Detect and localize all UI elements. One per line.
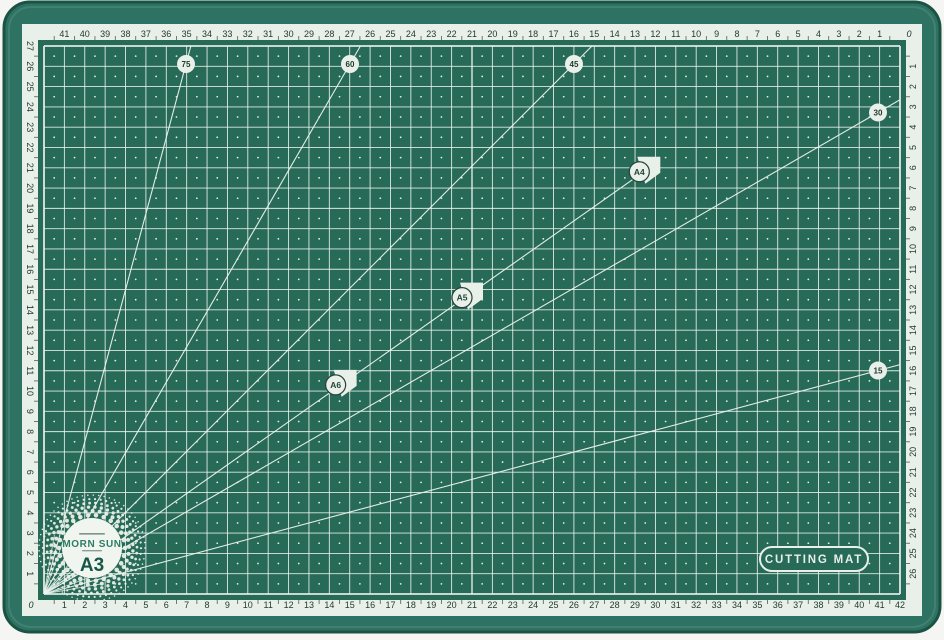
cell-dot	[542, 421, 544, 423]
cell-dot	[298, 400, 300, 402]
cell-dot	[828, 360, 830, 362]
cell-dot	[604, 76, 606, 78]
logo-halftone-dot	[62, 507, 64, 509]
cell-dot	[461, 421, 463, 423]
logo-halftone-dot	[76, 496, 78, 498]
cell-dot	[889, 502, 891, 504]
cell-dot	[441, 258, 443, 260]
ruler-number-right: 5	[908, 145, 918, 150]
cell-dot	[502, 197, 504, 199]
cell-dot	[277, 197, 279, 199]
cell-dot	[94, 76, 96, 78]
cell-dot	[114, 481, 116, 483]
logo-halftone-dot	[78, 577, 83, 582]
logo-halftone-dot	[96, 591, 99, 594]
cell-dot	[522, 583, 524, 585]
cell-dot	[216, 55, 218, 57]
cell-dot	[644, 502, 646, 504]
cell-dot	[848, 542, 850, 544]
cell-dot	[869, 542, 871, 544]
cell-dot	[563, 177, 565, 179]
cell-dot	[461, 279, 463, 281]
cell-dot	[420, 380, 422, 382]
cell-dot	[767, 339, 769, 341]
logo-halftone-dot	[49, 550, 52, 553]
logo-halftone-dot	[50, 514, 52, 516]
cell-dot	[665, 380, 667, 382]
cell-dot	[644, 481, 646, 483]
cell-dot	[787, 319, 789, 321]
logo-halftone-dot	[122, 565, 126, 569]
cell-dot	[155, 96, 157, 98]
cell-dot	[298, 563, 300, 565]
cell-dot	[644, 258, 646, 260]
logo-halftone-dot	[78, 515, 83, 520]
cell-dot	[339, 441, 341, 443]
logo-halftone-dot	[86, 578, 91, 583]
cell-dot	[379, 76, 381, 78]
angle-label-15: 15	[874, 366, 883, 375]
logo-halftone-dot	[58, 564, 62, 568]
logo-halftone-dot	[57, 546, 62, 551]
cell-dot	[665, 502, 667, 504]
cell-dot	[685, 238, 687, 240]
cell-dot	[502, 441, 504, 443]
cell-dot	[767, 55, 769, 57]
cell-dot	[665, 258, 667, 260]
logo-halftone-dot	[119, 561, 124, 566]
cell-dot	[359, 380, 361, 382]
cell-dot	[746, 421, 748, 423]
cell-dot	[746, 76, 748, 78]
logo-halftone-dot	[53, 584, 55, 586]
cell-dot	[216, 258, 218, 260]
cell-dot	[502, 157, 504, 159]
cell-dot	[828, 380, 830, 382]
cell-dot	[583, 360, 585, 362]
cell-dot	[563, 116, 565, 118]
cell-dot	[807, 177, 809, 179]
cell-dot	[665, 339, 667, 341]
cell-dot	[420, 177, 422, 179]
cell-dot	[135, 55, 137, 57]
cell-dot	[705, 96, 707, 98]
ruler-number-top: 16	[569, 29, 579, 39]
cell-dot	[420, 461, 422, 463]
cell-dot	[869, 461, 871, 463]
cell-dot	[237, 421, 239, 423]
cell-dot	[807, 481, 809, 483]
cell-dot	[624, 380, 626, 382]
cell-dot	[563, 197, 565, 199]
cell-dot	[685, 319, 687, 321]
cell-dot	[74, 380, 76, 382]
cell-dot	[542, 238, 544, 240]
logo-halftone-dot	[118, 502, 120, 504]
cell-dot	[318, 238, 320, 240]
cell-dot	[481, 197, 483, 199]
cell-dot	[298, 461, 300, 463]
cell-dot	[277, 421, 279, 423]
cell-dot	[767, 421, 769, 423]
ruler-number-bottom: 11	[264, 600, 273, 610]
cell-dot	[379, 583, 381, 585]
cell-dot	[481, 55, 483, 57]
cell-dot	[176, 522, 178, 524]
cell-dot	[94, 319, 96, 321]
cell-dot	[685, 360, 687, 362]
cell-dot	[155, 279, 157, 281]
cell-dot	[339, 481, 341, 483]
cell-dot	[542, 441, 544, 443]
cell-dot	[277, 441, 279, 443]
cell-dot	[746, 218, 748, 220]
cell-dot	[685, 502, 687, 504]
cell-dot	[400, 76, 402, 78]
logo-halftone-dot	[126, 538, 130, 542]
ruler-number-bottom: 12	[284, 600, 294, 610]
cell-dot	[74, 299, 76, 301]
cell-dot	[481, 421, 483, 423]
cell-dot	[828, 502, 830, 504]
logo-halftone-dot	[98, 510, 102, 514]
cell-dot	[135, 218, 137, 220]
cell-dot	[869, 380, 871, 382]
logo-halftone-dot	[106, 508, 109, 511]
cell-dot	[807, 339, 809, 341]
cell-dot	[461, 258, 463, 260]
logo-halftone-dot	[100, 503, 103, 506]
cell-dot	[318, 177, 320, 179]
cell-dot	[502, 319, 504, 321]
cell-dot	[604, 542, 606, 544]
logo-halftone-dot	[62, 591, 64, 593]
logo-halftone-dot	[94, 498, 96, 500]
logo-halftone-dot	[87, 505, 90, 508]
cell-dot	[298, 55, 300, 57]
cell-dot	[624, 583, 626, 585]
cell-dot	[400, 400, 402, 402]
logo-halftone-dot	[57, 582, 59, 584]
cell-dot	[216, 583, 218, 585]
ruler-number-bottom: 7	[184, 600, 189, 610]
cell-dot	[420, 96, 422, 98]
cell-dot	[339, 522, 341, 524]
cell-dot	[155, 157, 157, 159]
cell-dot	[216, 218, 218, 220]
cell-dot	[685, 441, 687, 443]
cell-dot	[53, 177, 55, 179]
logo-halftone-dot	[63, 515, 66, 518]
cell-dot	[807, 542, 809, 544]
cell-dot	[787, 542, 789, 544]
cell-dot	[746, 197, 748, 199]
cell-dot	[135, 279, 137, 281]
logo-halftone-dot	[79, 581, 83, 585]
cell-dot	[869, 218, 871, 220]
cell-dot	[53, 136, 55, 138]
cell-dot	[522, 177, 524, 179]
logo-halftone-dot	[72, 588, 75, 591]
cell-dot	[53, 441, 55, 443]
cell-dot	[298, 421, 300, 423]
cell-dot	[726, 238, 728, 240]
cell-dot	[74, 441, 76, 443]
cell-dot	[441, 238, 443, 240]
cell-dot	[298, 279, 300, 281]
cell-dot	[726, 461, 728, 463]
logo-halftone-dot	[124, 531, 128, 535]
logo-halftone-dot	[118, 571, 122, 575]
logo-halftone-dot	[66, 509, 69, 512]
cell-dot	[461, 502, 463, 504]
cell-dot	[767, 481, 769, 483]
logo-halftone-dot	[54, 573, 57, 576]
cell-dot	[216, 481, 218, 483]
cell-dot	[726, 380, 728, 382]
cell-dot	[114, 177, 116, 179]
cell-dot	[237, 563, 239, 565]
cell-dot	[522, 76, 524, 78]
cell-dot	[807, 136, 809, 138]
cell-dot	[135, 461, 137, 463]
logo-halftone-dot	[124, 583, 126, 585]
cell-dot	[277, 96, 279, 98]
logo-halftone-dot	[76, 598, 78, 600]
cell-dot	[196, 380, 198, 382]
cell-dot	[277, 299, 279, 301]
ruler-number-bottom: 16	[365, 600, 375, 610]
cell-dot	[461, 360, 463, 362]
cell-dot	[114, 136, 116, 138]
cell-dot	[257, 55, 259, 57]
cell-dot	[848, 481, 850, 483]
cell-dot	[746, 583, 748, 585]
cell-dot	[441, 563, 443, 565]
cell-dot	[379, 319, 381, 321]
cell-dot	[542, 157, 544, 159]
cell-dot	[869, 441, 871, 443]
ruler-number-left: 5	[25, 490, 35, 495]
cell-dot	[828, 583, 830, 585]
cell-dot	[481, 563, 483, 565]
cell-dot	[869, 400, 871, 402]
cell-dot	[767, 157, 769, 159]
ruler-number-bottom: 40	[854, 600, 864, 610]
cell-dot	[176, 116, 178, 118]
cell-dot	[176, 441, 178, 443]
logo-halftone-dot	[94, 513, 99, 518]
cell-dot	[563, 339, 565, 341]
cell-dot	[522, 279, 524, 281]
cell-dot	[787, 258, 789, 260]
cell-dot	[155, 441, 157, 443]
ruler-number-bottom: 37	[793, 600, 803, 610]
cell-dot	[502, 360, 504, 362]
cell-dot	[807, 380, 809, 382]
cell-dot	[53, 400, 55, 402]
ruler-number-top: 21	[467, 29, 477, 39]
cell-dot	[74, 421, 76, 423]
cell-dot	[277, 522, 279, 524]
cell-dot	[563, 136, 565, 138]
cell-dot	[604, 502, 606, 504]
cell-dot	[298, 177, 300, 179]
cell-dot	[298, 96, 300, 98]
logo-halftone-dot	[58, 554, 63, 559]
cell-dot	[502, 421, 504, 423]
cell-dot	[441, 339, 443, 341]
logo-halftone-dot	[82, 599, 84, 601]
cell-dot	[74, 319, 76, 321]
cell-dot	[889, 238, 891, 240]
cell-dot	[379, 55, 381, 57]
logo-halftone-dot	[71, 592, 73, 594]
logo-halftone-dot	[84, 510, 88, 514]
cell-dot	[94, 238, 96, 240]
cell-dot	[257, 218, 259, 220]
cell-dot	[379, 279, 381, 281]
cell-dot	[114, 319, 116, 321]
cell-dot	[726, 563, 728, 565]
cell-dot	[563, 542, 565, 544]
ruler-number-bottom: 26	[569, 600, 579, 610]
cell-dot	[542, 218, 544, 220]
logo-halftone-dot	[72, 502, 74, 504]
cell-dot	[869, 157, 871, 159]
cell-dot	[420, 481, 422, 483]
cell-dot	[807, 76, 809, 78]
cell-dot	[522, 563, 524, 565]
cell-dot	[502, 502, 504, 504]
cell-dot	[196, 218, 198, 220]
logo-halftone-dot	[132, 528, 135, 531]
logo-halftone-dot	[123, 546, 128, 551]
cell-dot	[848, 421, 850, 423]
cell-dot	[522, 218, 524, 220]
ruler-number-bottom: 10	[243, 600, 253, 610]
logo-halftone-dot	[53, 578, 55, 580]
cell-dot	[318, 583, 320, 585]
cell-dot	[114, 421, 116, 423]
cell-dot	[746, 319, 748, 321]
cell-dot	[604, 522, 606, 524]
cell-dot	[176, 502, 178, 504]
cell-dot	[481, 279, 483, 281]
logo-halftone-dot	[66, 594, 68, 596]
cell-dot	[726, 583, 728, 585]
cell-dot	[787, 583, 789, 585]
cutting-mat-photo: 1234567891011121314151617181920212223242…	[0, 0, 944, 640]
cell-dot	[685, 76, 687, 78]
ruler-number-bottom: 25	[549, 600, 559, 610]
cell-dot	[94, 177, 96, 179]
logo-halftone-dot	[128, 562, 131, 565]
cell-dot	[767, 197, 769, 199]
logo-halftone-dot	[140, 553, 142, 555]
cell-dot	[481, 502, 483, 504]
ruler-number-top: 1	[877, 29, 882, 39]
cell-dot	[400, 542, 402, 544]
cell-dot	[155, 542, 157, 544]
cell-dot	[277, 177, 279, 179]
cell-dot	[889, 563, 891, 565]
ruler-number-top: 29	[304, 29, 314, 39]
cell-dot	[400, 279, 402, 281]
cell-dot	[379, 157, 381, 159]
cell-dot	[135, 400, 137, 402]
cell-dot	[339, 461, 341, 463]
cell-dot	[542, 522, 544, 524]
logo-halftone-dot	[39, 555, 41, 557]
cell-dot	[848, 218, 850, 220]
cell-dot	[359, 96, 361, 98]
cell-dot	[644, 218, 646, 220]
cell-dot	[94, 421, 96, 423]
logo-halftone-dot	[109, 497, 111, 499]
cell-dot	[155, 339, 157, 341]
logo-halftone-dot	[112, 575, 116, 579]
cell-dot	[746, 502, 748, 504]
cell-dot	[176, 76, 178, 78]
logo-halftone-dot	[131, 543, 134, 546]
cell-dot	[828, 279, 830, 281]
ruler-number-top: 11	[671, 29, 680, 39]
cell-dot	[563, 481, 565, 483]
cell-dot	[481, 481, 483, 483]
cell-dot	[277, 461, 279, 463]
logo-halftone-dot	[66, 500, 68, 502]
cell-dot	[196, 339, 198, 341]
logo-halftone-dot	[120, 525, 124, 529]
logo-halftone-dot	[121, 519, 124, 522]
cell-dot	[726, 421, 728, 423]
cell-dot	[787, 421, 789, 423]
cell-dot	[705, 136, 707, 138]
logo-halftone-dot	[84, 591, 87, 594]
cell-dot	[746, 299, 748, 301]
logo-halftone-dot	[93, 494, 95, 496]
cell-dot	[135, 76, 137, 78]
cell-dot	[705, 238, 707, 240]
cell-dot	[767, 96, 769, 98]
cell-dot	[502, 583, 504, 585]
cell-dot	[685, 481, 687, 483]
logo-halftone-dot	[140, 547, 142, 549]
logo-halftone-dot	[126, 574, 129, 577]
logo-halftone-dot	[50, 580, 52, 582]
logo-halftone-dot	[88, 498, 90, 500]
cell-dot	[583, 583, 585, 585]
cell-dot	[746, 380, 748, 382]
cell-dot	[767, 502, 769, 504]
cell-dot	[298, 299, 300, 301]
cell-dot	[604, 380, 606, 382]
cell-dot	[53, 96, 55, 98]
cell-dot	[665, 279, 667, 281]
cell-dot	[522, 522, 524, 524]
cell-dot	[298, 502, 300, 504]
cell-dot	[767, 319, 769, 321]
cell-dot	[481, 360, 483, 362]
cell-dot	[237, 299, 239, 301]
logo-halftone-dot	[100, 586, 103, 589]
cell-dot	[787, 218, 789, 220]
cell-dot	[787, 380, 789, 382]
ruler-number-top: 24	[406, 29, 416, 39]
cell-dot	[277, 116, 279, 118]
cell-dot	[828, 197, 830, 199]
